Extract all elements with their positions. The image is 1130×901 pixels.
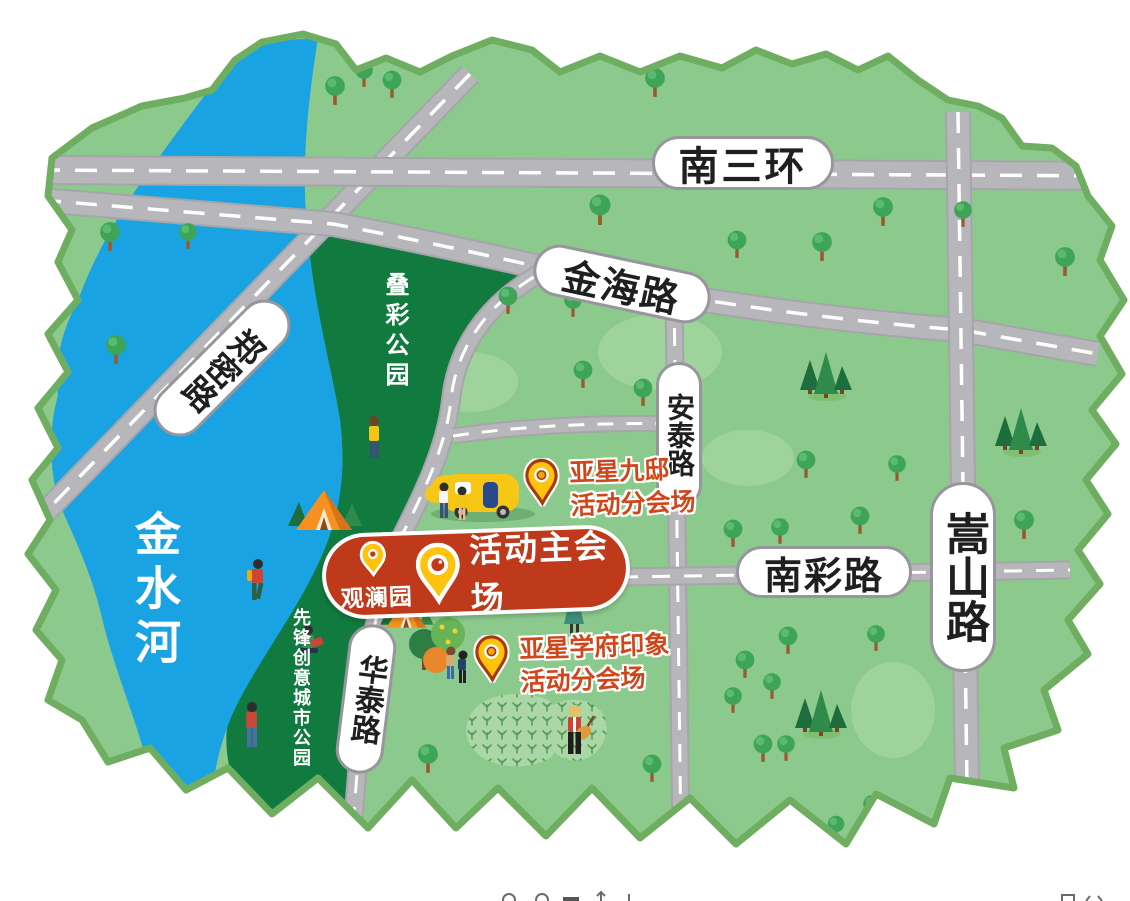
road-label-huatai-text: 华泰路: [339, 652, 394, 747]
main-venue-title: 活动主会场: [468, 519, 627, 620]
bottom-toolbar-fragments: [503, 892, 1102, 901]
map-illustration: [0, 0, 1130, 901]
main-venue-banner: 观澜园 活动主会场: [321, 524, 632, 621]
road-label-nancai-text: 南彩路: [764, 545, 884, 600]
sub-venue-xuefu-pin-icon: [473, 634, 511, 683]
sub-venue-jiudi-name: 亚星九邸: [569, 453, 695, 490]
park-label-diecai-text: 叠彩公园: [381, 272, 408, 392]
park-label-diecai: 叠彩公园: [377, 272, 412, 392]
sub-venue-jiudi-pin-icon: [523, 458, 561, 507]
mini-location-pin-icon: [359, 540, 387, 577]
person-walking: [246, 702, 257, 747]
road-label-songshan: 嵩山路: [930, 482, 996, 672]
park-label-xianfeng-text: 先锋创意城市公园: [291, 608, 311, 768]
main-venue-area-label: 观澜园: [332, 577, 421, 614]
sub-venue-jiudi-label: 亚星九邸 活动分会场: [569, 453, 696, 523]
road-label-nancai: 南彩路: [736, 546, 912, 598]
sub-venue-jiudi-subtitle: 活动分会场: [570, 486, 696, 523]
sub-venue-xuefu-name: 亚星学府印象: [519, 629, 670, 667]
river-label: 金水河: [122, 510, 188, 672]
sub-venue-xuefu-subtitle: 活动分会场: [520, 662, 671, 700]
sub-venue-xuefu: 亚星学府印象 活动分会场: [473, 629, 671, 702]
event-map-poster: 南三环 金海路 郑密路 安泰路 嵩山路 南彩路 华泰路 金水河 叠彩公园 先锋创…: [0, 0, 1130, 901]
person-yellow-shirt-park: [369, 416, 379, 458]
sub-venue-jiudi: 亚星九邸 活动分会场: [523, 453, 696, 525]
road-label-nansanhuan: 南三环: [652, 136, 834, 190]
park-label-xianfeng: 先锋创意城市公园: [288, 608, 314, 768]
main-venue-area: 观澜园: [325, 535, 413, 616]
road-label-nansanhuan-text: 南三环: [679, 134, 808, 192]
road-label-songshan-text: 嵩山路: [931, 511, 995, 643]
river-label-text: 金水河: [129, 510, 181, 672]
sub-venue-xuefu-label: 亚星学府印象 活动分会场: [519, 629, 671, 700]
